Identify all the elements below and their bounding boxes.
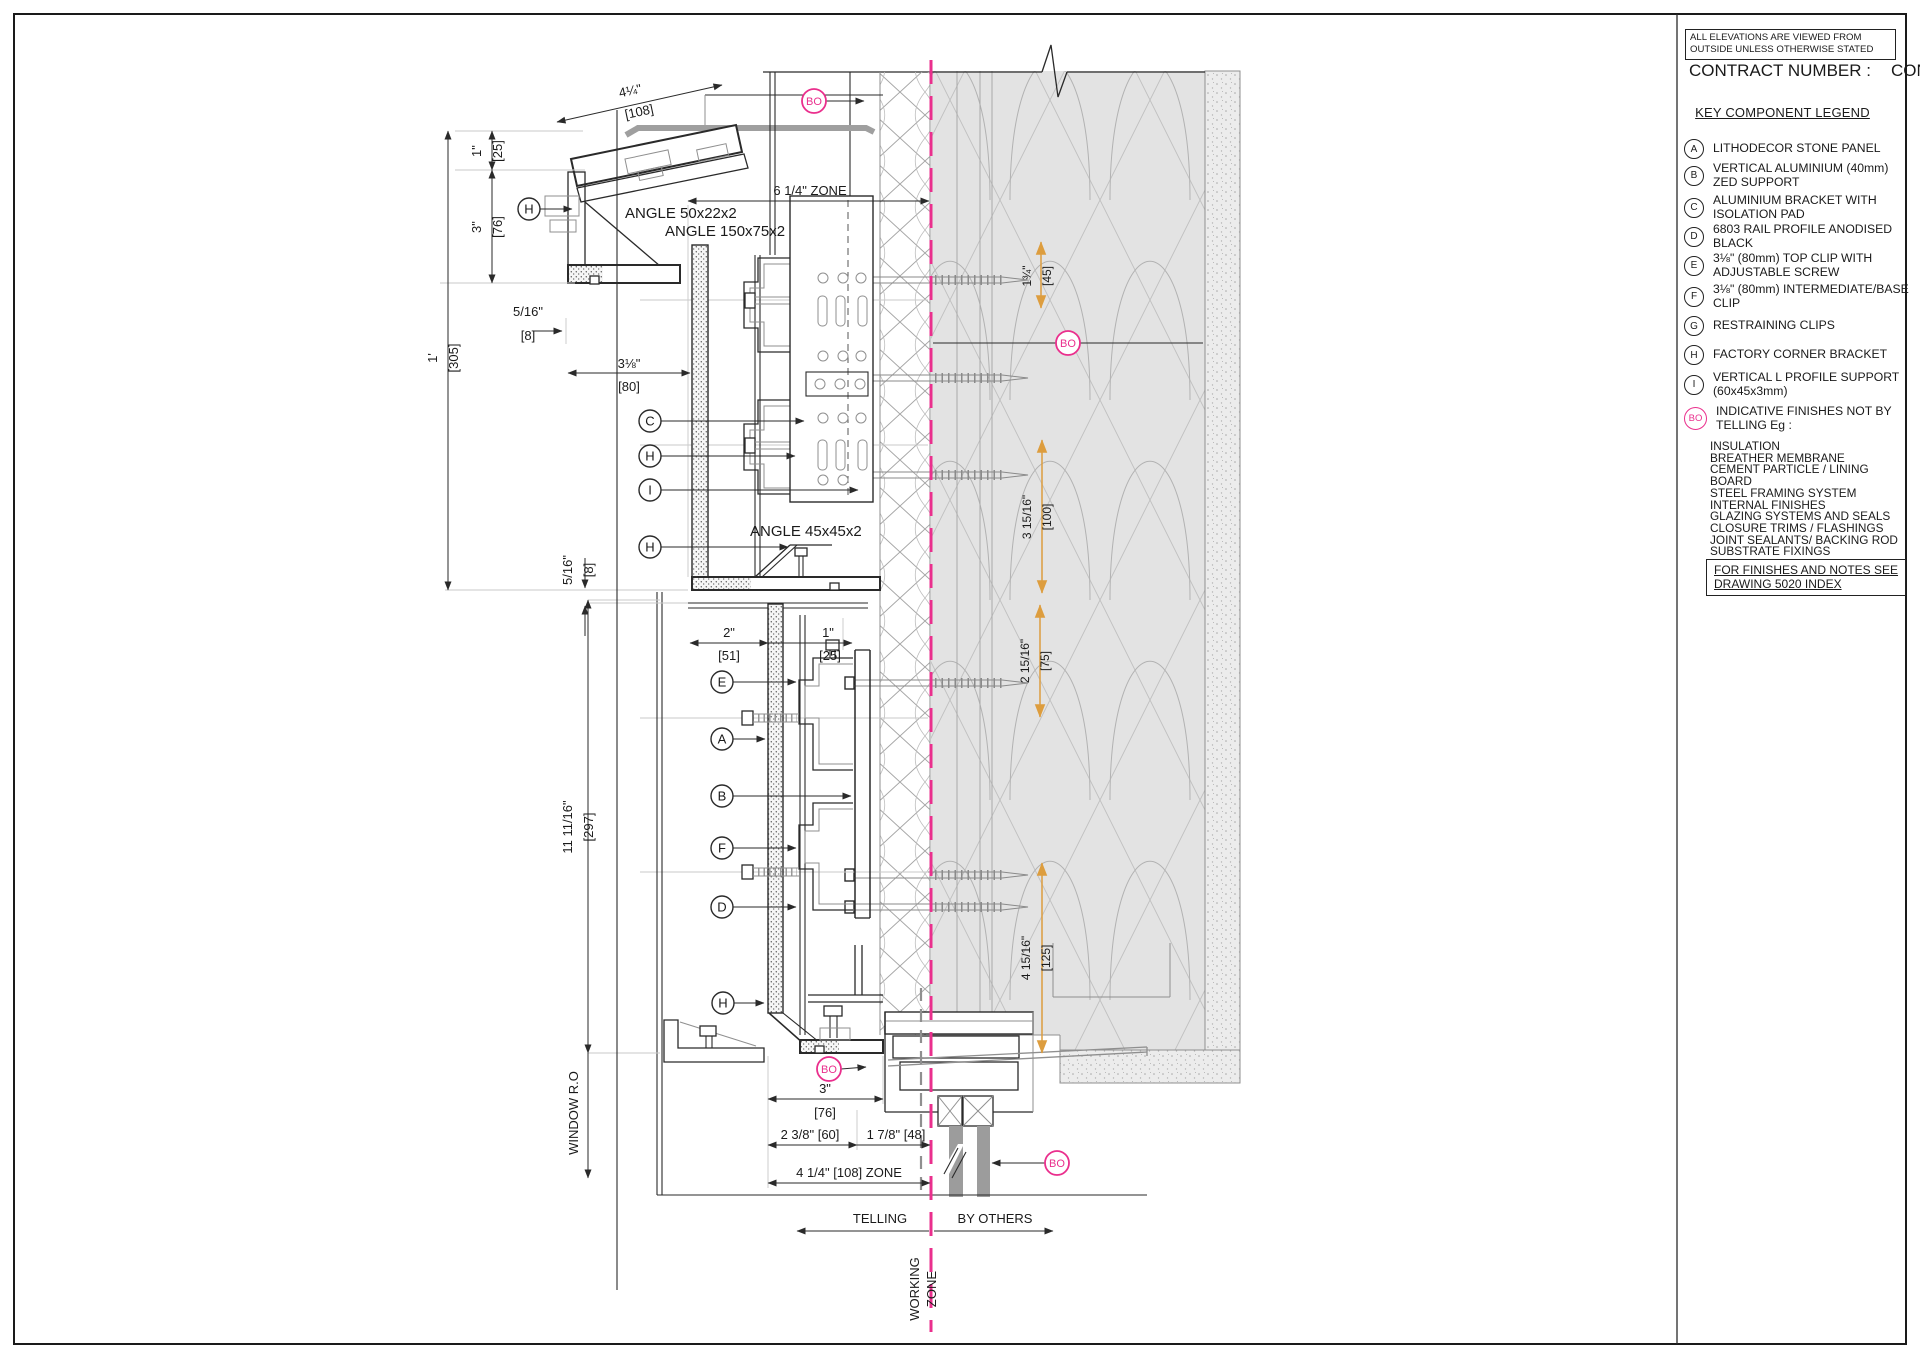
mullion-bar — [977, 1126, 990, 1197]
dim-text: 2 3/8" [60] — [781, 1127, 840, 1142]
dim-text: [76] — [490, 216, 505, 238]
dim-text: 1" — [469, 145, 484, 157]
legend-panel: ALL ELEVATIONS ARE VIEWED FROM OUTSIDE U… — [1677, 0, 1920, 1358]
concrete-strip — [1205, 71, 1240, 1050]
working-zone-label: ZONE — [924, 1271, 939, 1307]
callout-bo: BO — [806, 96, 822, 108]
angle-label: ANGLE 45x45x2 — [750, 523, 862, 540]
dim-text: [80] — [618, 379, 640, 394]
dim-text: 11 11/16" — [560, 800, 575, 854]
callout-c: C — [645, 414, 654, 429]
dim-text: 3 15/16" — [1020, 495, 1034, 539]
dim-text: [305] — [446, 344, 461, 373]
legend-key-i: I — [1684, 375, 1704, 395]
rail-profile-plate — [790, 196, 873, 502]
detail-drawing: 4¼" [108] 1" [25] 3" [76] 1' [305] 5/16"… — [0, 0, 1920, 1358]
finishes-note-box: FOR FINISHES AND NOTES SEE DRAWING 5020 … — [1706, 559, 1906, 596]
window-ro-label: WINDOW R.O — [566, 1071, 581, 1155]
dim-text: 3" — [469, 221, 484, 233]
working-zone-label: WORKING — [907, 1257, 922, 1321]
dim-text: 5/16" — [560, 555, 575, 585]
zone-label: 6 1/4" ZONE — [773, 183, 847, 198]
callout-h: H — [524, 202, 533, 217]
dim-text: [8] — [581, 563, 596, 577]
dim-text: [100] — [1040, 504, 1054, 531]
callout-d: D — [717, 900, 726, 915]
legend-key-h: H — [1684, 345, 1704, 365]
dim-text: [25] — [819, 648, 841, 663]
dim-text: 4 15/16" — [1019, 936, 1033, 980]
legend-key-b: B — [1684, 166, 1704, 186]
dim-text: 1¾" — [1020, 266, 1034, 287]
angle-label: ANGLE 50x22x2 — [625, 205, 737, 222]
contract-label: CONTRACT NUMBER : — [1689, 61, 1871, 80]
callout-i: I — [648, 483, 652, 498]
metal-flashing — [626, 128, 874, 135]
legend-item-d: D 6803 RAIL PROFILE ANODISED BLACK — [1684, 223, 1892, 250]
stone-panel-lower — [768, 604, 783, 1013]
callout-f: F — [718, 841, 726, 856]
callout-bo: BO — [1049, 1158, 1065, 1170]
callout-h: H — [718, 996, 727, 1011]
legend-key-a: A — [1684, 139, 1704, 159]
dim-text: 1" — [822, 625, 834, 640]
callout-h: H — [645, 540, 654, 555]
dim-text: [75] — [1038, 651, 1052, 671]
dim-text: [25] — [490, 140, 505, 162]
legend-item-a: A LITHODECOR STONE PANEL — [1684, 139, 1881, 159]
dim-text: [108] — [623, 101, 654, 122]
by-others-label: BY OTHERS — [958, 1211, 1033, 1226]
dim-text: [45] — [1040, 266, 1054, 286]
legend-key-e: E — [1684, 256, 1704, 276]
legend-item-c: C ALUMINIUM BRACKET WITH ISOLATION PAD — [1684, 194, 1877, 221]
dim-text: [125] — [1039, 945, 1053, 972]
wall-side-bracket — [808, 945, 883, 1040]
dim-text: 2" — [723, 625, 735, 640]
stone-panel-upper — [692, 245, 708, 577]
legend-item-f: F 3⅛" (80mm) INTERMEDIATE/BASE CLIP — [1684, 283, 1909, 310]
dim-text: [297] — [581, 813, 596, 842]
angle-bracket-45 — [755, 545, 832, 577]
legend-key-f: F — [1684, 287, 1704, 307]
dim-text: 1' — [425, 353, 440, 363]
legend-item-h: H FACTORY CORNER BRACKET — [1684, 345, 1887, 365]
dim-text: 2 15/16" — [1018, 639, 1032, 683]
callout-bo: BO — [1060, 338, 1076, 350]
insulation-hatch — [880, 72, 930, 1035]
legend-title: KEY COMPONENT LEGEND — [1695, 105, 1870, 120]
finishes-list: INSULATION BREATHER MEMBRANE CEMENT PART… — [1710, 441, 1898, 558]
dim-text: [76] — [814, 1105, 836, 1120]
legend-item-bo: BO INDICATIVE FINISHES NOT BY TELLING Eg… — [1684, 405, 1892, 432]
telling-label: TELLING — [853, 1211, 907, 1226]
callout-a: A — [718, 732, 727, 747]
dim-text: 3" — [819, 1081, 831, 1096]
dim-text: [8] — [521, 328, 535, 343]
dim-text: 5/16" — [513, 304, 543, 319]
dim-text: 1 7/8" [48] — [867, 1127, 926, 1142]
legend-item-g: G RESTRAINING CLIPS — [1684, 316, 1835, 336]
callout-h: H — [645, 449, 654, 464]
zone-label: 4 1/4" [108] ZONE — [796, 1165, 902, 1180]
contract-number: CONTRACT NUMBER :CONNO — [1689, 61, 1920, 81]
angle-label: ANGLE 150x75x2 — [665, 223, 785, 240]
callout-b: B — [718, 789, 727, 804]
legend-item-e: E 3⅛" (80mm) TOP CLIP WITH ADJUSTABLE SC… — [1684, 252, 1872, 279]
dim-text: 3⅛" — [618, 356, 641, 371]
contract-value: CONNO — [1891, 61, 1920, 80]
drawing-sheet: 4¼" [108] 1" [25] 3" [76] 1' [305] 5/16"… — [0, 0, 1920, 1358]
dim-text: [51] — [718, 648, 740, 663]
legend-key-bo: BO — [1684, 407, 1707, 430]
legend-key-g: G — [1684, 316, 1704, 336]
legend-key-c: C — [1684, 198, 1704, 218]
legend-item-b: B VERTICAL ALUMINIUM (40mm) ZED SUPPORT — [1684, 162, 1888, 189]
callout-e: E — [718, 675, 727, 690]
elevations-note: ALL ELEVATIONS ARE VIEWED FROM OUTSIDE U… — [1685, 29, 1896, 60]
legend-item-i: I VERTICAL L PROFILE SUPPORT (60x45x3mm) — [1684, 371, 1899, 398]
legend-key-d: D — [1684, 227, 1704, 247]
bottom-corner-bracket — [664, 1020, 764, 1062]
dim-text: 4¼" — [617, 81, 643, 100]
callout-bo: BO — [821, 1064, 837, 1076]
